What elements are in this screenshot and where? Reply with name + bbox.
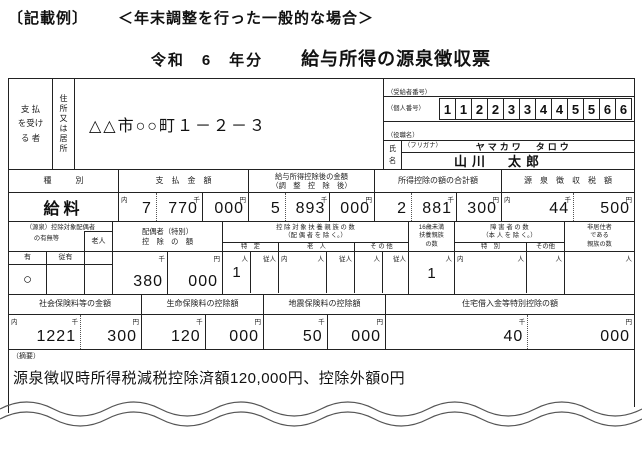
personal-number-digit: 6 — [615, 98, 632, 120]
spouse-presence-group: （源泉）控除対象配偶者 の有無等 老人 有 従有 ○ — [9, 222, 113, 294]
spouse-has-label: 有 — [9, 252, 47, 264]
personal-number-digit: 4 — [551, 98, 568, 120]
personal-number-digit: 4 — [535, 98, 552, 120]
total-deduction-value: 2 千881 円300 — [375, 193, 502, 221]
spouse-elderly-value — [85, 265, 112, 294]
dependents-specific-count: 人1 — [223, 252, 251, 293]
example-label: 〔記載例〕 — [8, 7, 88, 28]
spouse-deduction-header: 配偶者（特別） 控 除 の 額 — [113, 222, 222, 252]
form-title-row: 令和 6 年分 給与所得の源泉徴収票 — [0, 45, 642, 71]
dependents-group: 控 除 対 象 扶 養 親 族 の 数 （配 偶 者 を 除 く。） 特 定 老… — [223, 222, 409, 294]
disabled-group: 障 害 者 の 数 （本 人 を 除 く。） 特 別 その他 内人 人 — [455, 222, 565, 294]
withheld-tax-value: 内千44 円500 — [502, 193, 634, 221]
nonresident-header: 非居住者 である 親族の数 — [565, 222, 634, 252]
dependents-other-label: そ の 他 — [355, 243, 408, 251]
withholding-slip-form: 支 払 を受け る 者 住所又は居所 △△市○○町１－２－３ （受給者番号） （… — [8, 78, 635, 400]
insurance-row: 社会保険料等の金額 生命保険料の控除額 地震保険料の控除額 住宅借入金等特別控除… — [9, 295, 634, 350]
dependents-specific-label: 特 定 — [223, 243, 279, 251]
after-deduction-header: 給与所得控除後の金額 （調 整 控 除 後） — [249, 170, 375, 192]
case-label: ＜年末調整を行った一般的な場合＞ — [118, 7, 374, 28]
personal-number-digit: 1 — [439, 98, 456, 120]
disabled-header: 障 害 者 の 数 — [455, 222, 564, 232]
nonresident-count: 人 — [565, 252, 634, 294]
name-block: 氏 名 （フリガナ） ヤマカワ タロウ 山川 太郎 — [384, 141, 634, 169]
remarks-label: （摘要） — [9, 350, 634, 361]
payment-amount-value: 内7 千770 円000 — [119, 193, 249, 221]
en-marker: 円 — [240, 194, 247, 204]
page-header: 〔記載例〕 ＜年末調整を行った一般的な場合＞ — [8, 7, 374, 28]
quake-insurance-header: 地震保険料の控除額 — [264, 295, 386, 314]
nonresident-group: 非居住者 である 親族の数 人 — [565, 222, 634, 294]
recipient-number-label: （受給者番号） — [384, 79, 634, 97]
name-label: 氏 名 — [384, 141, 402, 169]
remarks-text: 源泉徴収時所得税減税控除済額120,000円、控除外額0円 — [9, 361, 634, 388]
disabled-other-label: その他 — [527, 243, 564, 251]
personal-number-digit: 3 — [519, 98, 536, 120]
spouse-subhas-value — [47, 265, 85, 294]
payment-amount-header: 支 払 金 額 — [119, 170, 249, 192]
role-title-label: （役職名） — [384, 122, 634, 141]
income-type-value: 給料 — [9, 193, 119, 221]
quake-insurance-value: 千50 円000 — [264, 315, 386, 349]
under16-count: 人 1 — [409, 252, 454, 294]
withheld-tax-header: 源 泉 徴 収 税 額 — [502, 170, 634, 192]
form-title: 給与所得の源泉徴収票 — [301, 45, 491, 71]
furigana-label: （フリガナ） — [402, 142, 442, 151]
payee-role-label: 支 払 を受け る 者 — [9, 79, 53, 169]
name-value: 山川 太郎 — [402, 153, 634, 168]
personal-number-digit: 5 — [567, 98, 584, 120]
disabled-special-label: 特 別 — [455, 243, 527, 251]
address-value: △△市○○町１－２－３ — [75, 79, 384, 169]
spouse-subhas-label: 従有 — [47, 252, 85, 264]
sen-marker: 千 — [193, 194, 200, 204]
under16-group: 16歳未満 扶養親族 の数 人 1 — [409, 222, 455, 294]
year-label: 令和 6 年分 — [151, 49, 263, 70]
income-type-header: 種 別 — [9, 170, 119, 192]
after-deduction-value: 5 千893 円000 — [249, 193, 375, 221]
personal-number-row: （個人番号） 1 1 2 2 3 3 4 4 5 5 6 6 — [384, 97, 634, 122]
spouse-dependents-row: （源泉）控除対象配偶者 の有無等 老人 有 従有 ○ 配偶者（特別） 控 除 の… — [9, 222, 634, 295]
spouse-elderly-label: 老人 — [84, 231, 112, 252]
personal-number-boxes: 1 1 2 2 3 3 4 4 5 5 6 6 — [440, 98, 632, 120]
housing-deduction-value: 千40 円000 — [386, 315, 634, 349]
personal-number-digit: 1 — [455, 98, 472, 120]
personal-number-digit: 2 — [471, 98, 488, 120]
housing-deduction-header: 住宅借入金等特別控除の額 — [386, 295, 634, 314]
personal-number-digit: 3 — [503, 98, 520, 120]
dependents-other-count: 人 — [355, 252, 383, 293]
disabled-special-count: 内人 — [455, 252, 527, 293]
dependents-elderly-label: 老 人 — [279, 243, 355, 251]
personal-number-digit: 2 — [487, 98, 504, 120]
uchi-marker: 内 — [121, 194, 129, 204]
life-insurance-value: 千120 円000 — [142, 315, 264, 349]
social-insurance-value: 内千1221 円300 — [9, 315, 142, 349]
under16-header: 16歳未満 扶養親族 の数 — [409, 222, 454, 252]
personal-number-digit: 6 — [599, 98, 616, 120]
address-label: 住所又は居所 — [53, 79, 75, 169]
spouse-deduction-value: 千380 円000 — [113, 252, 222, 294]
dependents-header: 控 除 対 象 扶 養 親 族 の 数 — [223, 222, 408, 232]
payee-id-section: （受給者番号） （個人番号） 1 1 2 2 3 3 4 4 5 5 6 6 — [384, 79, 634, 169]
dependents-elderly-count: 内人 — [279, 252, 327, 293]
life-insurance-header: 生命保険料の控除額 — [142, 295, 264, 314]
spouse-has-value: ○ — [9, 265, 47, 294]
personal-number-digit: 5 — [583, 98, 600, 120]
personal-number-label: （個人番号） — [387, 105, 425, 114]
remarks-section: （摘要） 源泉徴収時所得税減税控除済額120,000円、控除外額0円 — [9, 350, 634, 400]
social-insurance-header: 社会保険料等の金額 — [9, 295, 142, 314]
payee-row: 支 払 を受け る 者 住所又は居所 △△市○○町１－２－３ （受給者番号） （… — [9, 79, 634, 170]
disabled-other-count: 人 — [527, 252, 564, 293]
total-deduction-header: 所得控除の額の合計額 — [375, 170, 502, 192]
income-row: 種 別 支 払 金 額 給与所得控除後の金額 （調 整 控 除 後） 所得控除の… — [9, 170, 634, 222]
torn-edge-wave — [0, 397, 642, 447]
spouse-deduction-group: 配偶者（特別） 控 除 の 額 千380 円000 — [113, 222, 223, 294]
